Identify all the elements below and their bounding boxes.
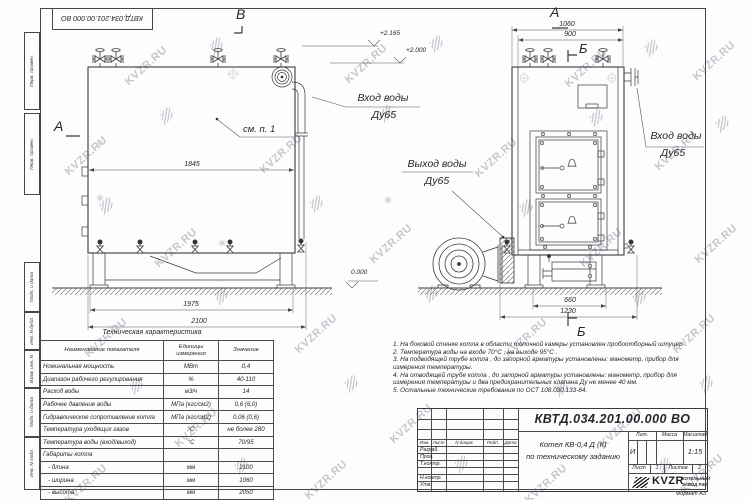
product-name-line1: Котел КВ-0,4 Д (К) <box>518 440 628 449</box>
dim-1975: 1975 <box>183 301 199 308</box>
valve-icon <box>211 49 225 67</box>
table-row: Расход водым3/ч14 <box>41 386 274 399</box>
dim-900: 900 <box>564 31 576 38</box>
dim-1845: 1845 <box>184 161 200 168</box>
water-inlet-label-front: Вход воды <box>651 130 702 142</box>
table-row: - длинамм2100 <box>41 461 274 474</box>
table-cell: 14 <box>219 386 274 399</box>
drawing-sheet: KVZR.RUKVZR.RUKVZR.RUKVZR.RUKVZR.RUKVZR.… <box>0 0 750 500</box>
valve-icon <box>93 49 107 67</box>
table-cell: 0,06 (0,6) <box>219 411 274 424</box>
star-mark-icon <box>96 139 104 147</box>
sheet-value: 1 <box>650 465 664 471</box>
table-title: Техническая характеристика <box>102 329 201 336</box>
table-cell: Рабочее давление воды <box>41 398 164 411</box>
drain-valve-icon <box>628 240 634 253</box>
valve-icon <box>274 49 288 67</box>
drain-valve-icon <box>97 240 103 253</box>
table-cell: 2050 <box>219 486 274 499</box>
section-marker-a-side: А <box>54 118 63 134</box>
water-inlet-dn-side: Ду65 <box>372 109 396 121</box>
drain-valve-icon <box>298 239 304 252</box>
water-inlet-label-side: Вход воды <box>358 92 409 104</box>
rev-header: Дата <box>503 440 518 445</box>
scale-label: Масштаб <box>683 432 707 438</box>
sheets-value: 2 <box>692 465 707 471</box>
rev-header: Изм. <box>418 440 431 445</box>
product-name-line2: по техническому заданию <box>518 452 628 461</box>
technical-notes: 1. На боковой стенке котла в области топ… <box>393 341 706 395</box>
scale-value: 1:15 <box>683 447 707 456</box>
table-cell: 2100 <box>219 461 274 474</box>
table-cell: - высота <box>41 486 164 499</box>
table-cell: % <box>164 373 219 386</box>
dim-1060: 1060 <box>559 21 575 28</box>
dim-1230: 1230 <box>560 308 576 315</box>
table-cell <box>164 449 219 462</box>
format-note: Формат А3 <box>600 491 706 497</box>
drain-valve-icon <box>192 240 198 253</box>
role-label: Разраб. <box>420 447 439 453</box>
table-cell: Номинальная мощность <box>41 361 164 374</box>
table-cell: °С <box>164 436 219 449</box>
table-cell: Расход воды <box>41 386 164 399</box>
rev-header: N докум. <box>446 440 483 445</box>
table-cell: Температура уходящих газов <box>41 423 164 436</box>
table-cell: 0,4 <box>219 361 274 374</box>
company-line1: КОТЕЛЬНЫЙ <box>682 476 710 481</box>
marker-b-bottom: Б <box>577 324 585 339</box>
role-label: Н.контр. <box>420 475 442 481</box>
table-cell: Температура воды (вход/выход) <box>41 436 164 449</box>
table-cell: не более 280 <box>219 423 274 436</box>
drain-valve-icon <box>137 240 143 253</box>
note-line: 4. На отводящей трубе котла , до запорно… <box>393 372 706 387</box>
table-cell: - ширина <box>41 474 164 487</box>
table-cell: Габариты котла <box>41 449 164 462</box>
table-header: Единицы измерения <box>164 341 219 361</box>
role-label: Утв. <box>420 482 432 488</box>
door-latch-icon <box>567 159 576 166</box>
view-label-a: А <box>550 4 559 20</box>
role-label: Т.контр. <box>420 461 441 467</box>
registration-mark-icon <box>606 72 618 84</box>
table-cell: °С <box>164 423 219 436</box>
lit-value: И <box>628 447 637 456</box>
table-cell: 0,6 (6,0) <box>219 398 274 411</box>
table-row: Диапазон рабочего регулирования%40-110 <box>41 373 274 386</box>
water-inlet-dn-front: Ду65 <box>661 147 685 159</box>
lit-label: Лит. <box>628 432 656 438</box>
table-row: Температура воды (вход/выход)°С70/95 <box>41 436 274 449</box>
star-mark-icon <box>218 239 226 247</box>
marker-b-top: Б <box>579 41 587 56</box>
star-mark-icon <box>96 194 104 202</box>
door-latch-icon <box>567 216 576 223</box>
valve-icon <box>541 49 555 67</box>
table-header: Наименование показателя <box>41 341 164 361</box>
level-mark-mid: +2.000 <box>406 47 426 54</box>
see-note-label: см. п. 1 <box>243 124 275 135</box>
star-mark-icon <box>384 196 392 204</box>
role-label: Пров. <box>420 454 434 460</box>
drain-valve-icon <box>227 240 233 253</box>
company-line2: ЗАВОД РЭП <box>682 482 708 487</box>
table-cell: 70/95 <box>219 436 274 449</box>
table-row: - высотамм2050 <box>41 486 274 499</box>
table-cell: мм <box>164 486 219 499</box>
doc-number: КВТД.034.201.00.000 ВО <box>518 412 707 426</box>
sheets-label: Листов <box>664 465 692 471</box>
table-row: - ширинамм1060 <box>41 474 274 487</box>
table-cell: Гидравлическое сопротивление котла <box>41 411 164 424</box>
table-cell: 1060 <box>219 474 274 487</box>
level-mark-ground: 0.000 <box>351 269 367 276</box>
table-cell: МВт <box>164 361 219 374</box>
table-row: Рабочее давление водыМПа (кгс/см2)0,6 (6… <box>41 398 274 411</box>
dim-2100: 2100 <box>191 318 207 325</box>
water-outlet-dn: Ду65 <box>425 175 449 187</box>
table-row: Гидравлическое сопротивление котлаМПа (к… <box>41 411 274 424</box>
rev-header: Лист <box>431 440 446 445</box>
table-cell: мм <box>164 474 219 487</box>
rev-header: Подп. <box>483 440 503 445</box>
valve-icon <box>109 49 123 67</box>
view-label-b: В <box>236 6 245 22</box>
note-line: 3. На подводящей трубе котла , до запорн… <box>393 356 706 371</box>
level-mark-top: +2.165 <box>380 30 400 37</box>
table-cell: м3/ч <box>164 386 219 399</box>
mass-label: Масса <box>656 432 683 438</box>
table-cell <box>219 449 274 462</box>
sheet-label: Лист <box>628 465 650 471</box>
table-cell: МПа (кгс/см2) <box>164 411 219 424</box>
registration-mark-icon <box>518 72 530 84</box>
valve-icon <box>596 49 610 67</box>
table-cell: мм <box>164 461 219 474</box>
title-block: КВТД.034.201.00.000 ВО Котел КВ-0,4 Д (К… <box>417 408 708 492</box>
note-line: 5. Остальные технические требования по О… <box>393 387 706 395</box>
tech-characteristics-table: Наименование показателяЕдиницы измерения… <box>40 340 274 500</box>
kvzr-logo-text: KVZR <box>652 475 684 487</box>
valve-icon <box>523 49 537 67</box>
table-row: Габариты котла <box>41 449 274 462</box>
dim-660: 660 <box>564 297 576 304</box>
table-cell: МПа (кгс/см2) <box>164 398 219 411</box>
registration-mark-icon <box>227 68 239 80</box>
table-cell: Диапазон рабочего регулирования <box>41 373 164 386</box>
kvzr-logo-icon <box>632 477 650 488</box>
water-outlet-label: Выход воды <box>407 158 466 170</box>
table-row: Номинальная мощностьМВт0,4 <box>41 361 274 374</box>
table-cell: - длина <box>41 461 164 474</box>
note-line: 1. На боковой стенке котла в области топ… <box>393 341 706 349</box>
table-header: Значение <box>219 341 274 361</box>
table-row: Температура уходящих газов°Сне более 280 <box>41 423 274 436</box>
table-cell: 40-110 <box>219 373 274 386</box>
